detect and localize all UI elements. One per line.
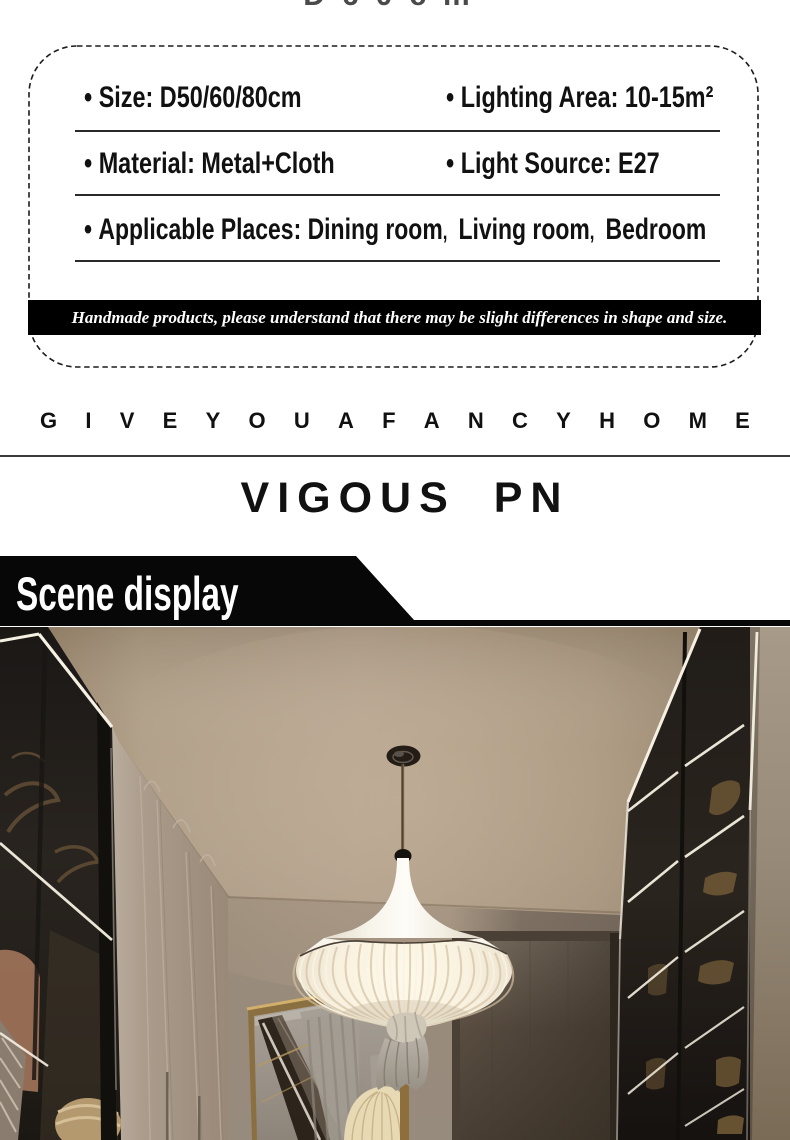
svg-text:Scene display: Scene display (16, 567, 239, 620)
